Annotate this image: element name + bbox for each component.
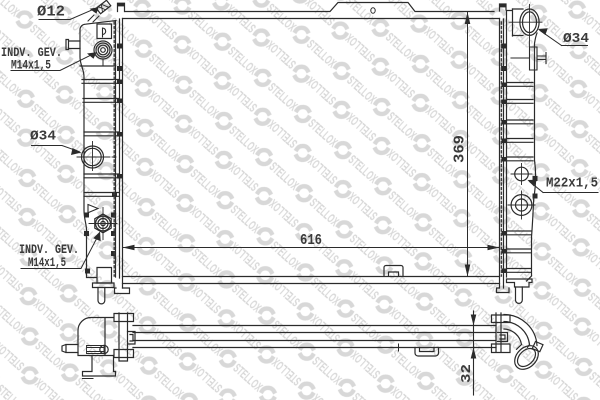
svg-text:M14x1,5: M14x1,5 — [28, 255, 66, 270]
svg-text:Ø34: Ø34 — [563, 31, 589, 47]
svg-text:M14x1,5: M14x1,5 — [11, 58, 51, 73]
svg-text:Ø34: Ø34 — [30, 129, 56, 145]
svg-text:32: 32 — [459, 364, 475, 383]
svg-text:M22x1,5: M22x1,5 — [546, 176, 598, 192]
svg-text:369: 369 — [452, 135, 469, 163]
svg-text:616: 616 — [300, 232, 322, 249]
svg-text:Ø12: Ø12 — [37, 4, 65, 21]
